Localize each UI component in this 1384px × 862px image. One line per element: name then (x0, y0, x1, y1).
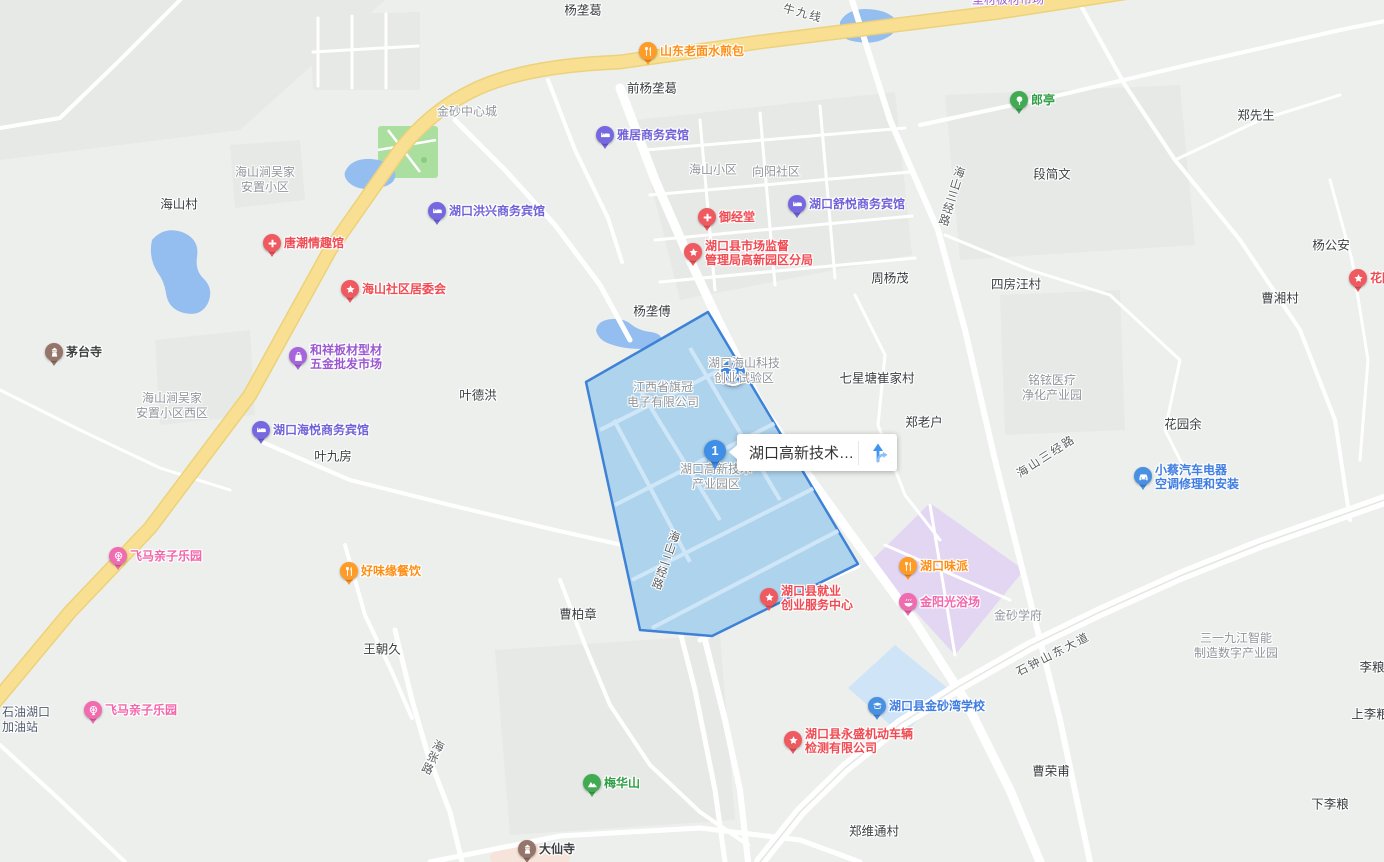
place-label: 杨公安 (1312, 235, 1350, 254)
poi-label[interactable]: 梅华山 (604, 776, 640, 790)
poi-label[interactable]: 湖口县就业创业服务中心 (781, 584, 853, 612)
hotel-icon (428, 202, 446, 220)
poi-label[interactable]: 飞马亲子乐园 (130, 549, 202, 563)
fun-icon (84, 701, 102, 719)
tree-icon (1010, 91, 1028, 109)
hotel-icon (252, 421, 270, 439)
poi-label[interactable]: 飞马亲子乐园 (105, 703, 177, 717)
place-label: 李粮 (1359, 657, 1384, 676)
place-label: 叶九房 (314, 446, 352, 465)
poi-label[interactable]: 湖口海悦商务宾馆 (273, 423, 369, 437)
road-label: 海山二经路 (647, 528, 682, 592)
star-icon (684, 243, 702, 261)
bath-icon (899, 593, 917, 611)
temple-icon (518, 840, 536, 858)
label-layer: 山东老面水煎包雅居商务宾馆湖口洪兴商务宾馆湖口舒悦商务宾馆御经堂唐潮情趣馆湖口县… (0, 0, 1384, 862)
poi-label[interactable]: 湖口舒悦商务宾馆 (809, 197, 905, 211)
poi-label[interactable]: 好味缘餐饮 (361, 564, 421, 578)
place-label: 叶德洪 (459, 385, 497, 404)
map-viewport[interactable]: 山东老面水煎包雅居商务宾馆湖口洪兴商务宾馆湖口舒悦商务宾馆御经堂唐潮情趣馆湖口县… (0, 0, 1384, 862)
medical-icon (698, 208, 716, 226)
road-label: 海山三经路 (934, 164, 968, 228)
area-label: 海山涧吴家安置小区 (235, 165, 295, 195)
road-label: 海张路 (417, 737, 447, 778)
popup-pointer (729, 445, 737, 459)
food-icon (340, 562, 358, 580)
poi-label[interactable]: 金阳光浴场 (920, 595, 980, 609)
poi-label[interactable]: 湖口县市场监督管理局高新园区分局 (705, 239, 813, 267)
poi-label[interactable]: 小蔡汽车电器空调修理和安装 (1155, 463, 1239, 491)
area-label: 向阳社区 (752, 165, 800, 180)
place-label: 曹荣甫 (1032, 761, 1070, 780)
hotel-icon (596, 126, 614, 144)
mountain-icon (583, 774, 601, 792)
poi-label[interactable]: 湖口洪兴商务宾馆 (449, 204, 545, 218)
result-popup[interactable]: 湖口高新技术… (737, 434, 897, 471)
area-label: 金砂中心城 (437, 105, 497, 120)
place-label: 周杨茂 (871, 268, 909, 287)
road-label: 海山三经路 (1013, 431, 1078, 481)
temple-icon (45, 343, 63, 361)
place-label: 下李粮 (1311, 794, 1349, 813)
poi-label[interactable]: 山东老面水煎包 (660, 44, 744, 58)
star-icon (341, 280, 359, 298)
star-icon (760, 588, 778, 606)
place-label: 海山村 (160, 194, 198, 213)
place-label: 杨垄葛 (564, 0, 602, 19)
place-label: 郑维通村 (849, 821, 899, 840)
place-label: 杨垄傅 (633, 301, 671, 320)
place-label: 郑老户 (905, 412, 943, 431)
area-label: 海山涧吴家安置小区西区 (136, 391, 208, 421)
poi-label[interactable]: 茅台寺 (66, 345, 102, 359)
area-label: 金砂学府 (994, 609, 1042, 624)
poi-label[interactable]: 湖口县永盛机动车辆检测有限公司 (805, 727, 913, 755)
area-label: 三一九江智能制造数字产业园 (1194, 631, 1278, 661)
place-label: 王朝久 (363, 639, 401, 658)
poi-label[interactable]: 湖口味派 (920, 559, 968, 573)
poi-label[interactable]: 海山社区居委会 (362, 282, 446, 296)
road-label: 石钟山东大道 (1013, 628, 1092, 679)
poi-label[interactable]: 湖口县金砂湾学校 (889, 699, 985, 713)
area-label: 石油湖口加油站 (2, 705, 50, 735)
area-label: 铭铉医疗净化产业园 (1022, 373, 1082, 403)
navigate-arrow-icon (866, 441, 890, 465)
place-label: 七星塘崔家村 (839, 368, 914, 387)
place-label: 曹柏章 (559, 604, 597, 623)
shop-icon (289, 347, 307, 365)
marker-number: 1 (704, 440, 726, 462)
area-label: 型材板材市场 (972, 0, 1044, 8)
place-label: 曹湘村 (1261, 288, 1299, 307)
road-label: 牛九线 (781, 0, 824, 26)
poi-label[interactable]: 大仙寺 (539, 842, 575, 856)
food-icon (899, 557, 917, 575)
place-label: 上李粮 (1351, 704, 1384, 723)
fun-icon (109, 547, 127, 565)
place-label: 郑先生 (1237, 105, 1275, 124)
area-label: 湖口海山科技创业试验区 (708, 356, 780, 386)
place-label: 四房汪村 (991, 274, 1041, 293)
poi-label[interactable]: 唐潮情趣馆 (284, 236, 344, 250)
place-label: 前杨垄葛 (627, 78, 677, 97)
area-label: 江西省旗冠电子有限公司 (627, 380, 699, 410)
place-label: 段简文 (1033, 164, 1071, 183)
hotel-icon (788, 195, 806, 213)
school-icon (868, 697, 886, 715)
poi-label[interactable]: 和祥板材型材五金批发市场 (310, 343, 382, 371)
food-icon (639, 42, 657, 60)
area-label: 海山小区 (689, 163, 737, 178)
poi-label[interactable]: 郎亭 (1031, 93, 1055, 107)
poi-label[interactable]: 雅居商务宾馆 (617, 128, 689, 142)
car-icon (1134, 467, 1152, 485)
star-icon (784, 731, 802, 749)
navigate-button[interactable] (859, 434, 897, 471)
result-title[interactable]: 湖口高新技术… (737, 442, 858, 463)
poi-label[interactable]: 花园 (1370, 271, 1384, 285)
medical-icon (263, 234, 281, 252)
star-icon (1349, 269, 1367, 287)
poi-label[interactable]: 御经堂 (719, 210, 755, 224)
place-label: 花园余 (1164, 414, 1202, 433)
